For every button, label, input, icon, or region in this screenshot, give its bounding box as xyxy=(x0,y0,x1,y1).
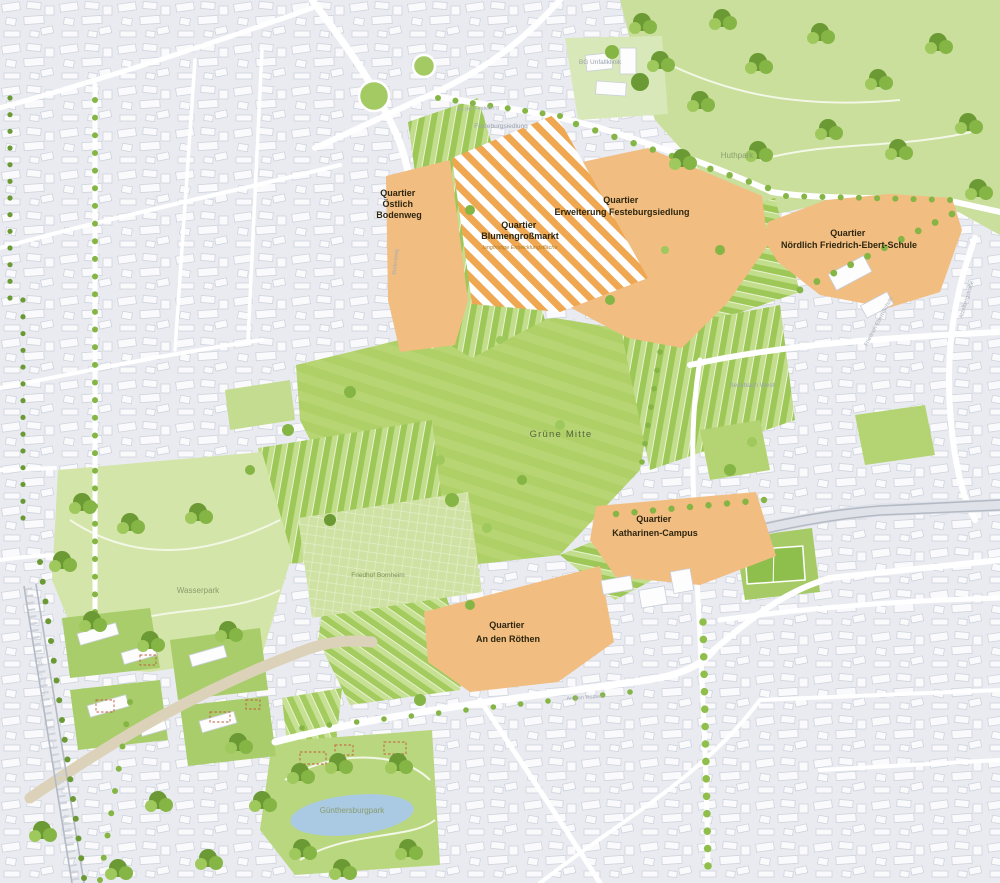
tree-icon xyxy=(409,846,423,860)
tree-icon xyxy=(687,504,693,510)
tree-icon xyxy=(838,194,844,200)
tree-icon xyxy=(20,331,25,336)
tree-icon xyxy=(73,816,79,822)
tree-icon xyxy=(92,485,98,491)
tree-icon xyxy=(131,520,145,534)
tree-icon xyxy=(51,658,57,664)
tree-icon xyxy=(324,514,336,526)
tree-icon xyxy=(343,866,357,880)
tree-icon xyxy=(668,506,674,512)
tree-icon xyxy=(195,858,207,870)
tree-icon xyxy=(101,855,107,861)
tree-icon xyxy=(263,798,277,812)
tree-icon xyxy=(344,386,356,398)
tree-icon xyxy=(724,500,730,506)
tree-icon xyxy=(92,238,98,244)
tree-icon xyxy=(92,450,98,456)
tree-icon xyxy=(557,113,563,119)
tree-icon xyxy=(92,327,98,333)
tree-icon xyxy=(605,45,619,59)
tree-icon xyxy=(709,18,721,30)
tree-icon xyxy=(92,274,98,280)
tree-icon xyxy=(639,459,645,465)
tree-icon xyxy=(630,140,636,146)
tree-icon xyxy=(43,828,57,842)
tree-icon xyxy=(700,636,708,644)
tree-icon xyxy=(915,227,922,234)
tree-icon xyxy=(724,464,736,476)
tree-icon xyxy=(414,694,426,706)
tree-icon xyxy=(545,698,551,704)
tree-icon xyxy=(7,212,12,217)
tree-icon xyxy=(108,810,114,816)
tree-icon xyxy=(815,128,827,140)
tree-icon xyxy=(289,848,301,860)
label-quartier-oestlich-bodenweg: Quartier Östlich Bodenweg xyxy=(376,188,422,220)
map: Quartier Östlich Bodenweg Quartier Blume… xyxy=(0,0,1000,883)
tree-icon xyxy=(643,20,657,34)
tree-icon xyxy=(20,482,25,487)
tree-icon xyxy=(20,297,25,302)
tree-icon xyxy=(92,185,98,191)
tree-icon xyxy=(137,640,149,652)
tree-icon xyxy=(452,98,458,104)
tree-icon xyxy=(687,100,699,112)
tree-icon xyxy=(20,432,25,437)
label-friedhof-bornheim: Friedhof Bornheim xyxy=(351,572,404,579)
tree-icon xyxy=(299,725,305,731)
tree-icon xyxy=(955,122,967,134)
tree-icon xyxy=(159,798,173,812)
tree-icon xyxy=(703,827,711,835)
tree-icon xyxy=(199,510,213,524)
tree-icon xyxy=(651,386,657,392)
tree-icon xyxy=(435,455,445,465)
tree-icon xyxy=(518,701,524,707)
tree-icon xyxy=(939,40,953,54)
label-huthpark: Huthpark xyxy=(721,151,754,160)
tree-icon xyxy=(611,134,617,140)
tree-icon xyxy=(702,775,710,783)
tree-icon xyxy=(151,638,165,652)
tree-icon xyxy=(339,760,353,774)
tree-icon xyxy=(436,710,442,716)
tree-icon xyxy=(701,723,709,731)
tree-icon xyxy=(874,195,880,201)
tree-icon xyxy=(650,507,656,513)
tree-icon xyxy=(701,705,709,713)
tree-icon xyxy=(856,195,862,201)
tree-icon xyxy=(37,559,43,565)
tree-icon xyxy=(329,868,341,880)
tree-icon xyxy=(847,261,854,268)
tree-icon xyxy=(20,465,25,470)
label-quartier-blumengrossmarkt-subtitle: langfristige Entwicklungsfläche xyxy=(483,245,558,251)
tree-icon xyxy=(381,716,387,722)
tree-icon xyxy=(40,579,46,585)
tree-icon xyxy=(92,574,98,580)
tree-icon xyxy=(701,688,709,696)
tree-icon xyxy=(661,246,669,254)
tree-icon xyxy=(759,148,773,162)
tree-icon xyxy=(699,618,707,626)
tree-icon xyxy=(65,757,71,763)
tree-icon xyxy=(120,744,126,750)
tree-icon xyxy=(63,558,77,572)
tree-icon xyxy=(465,205,475,215)
tree-icon xyxy=(92,432,98,438)
tree-icon xyxy=(629,22,641,34)
tree-icon xyxy=(7,279,12,284)
interchange-loop-icon xyxy=(413,55,435,77)
tree-icon xyxy=(79,620,91,632)
tree-icon xyxy=(463,707,469,713)
tree-icon xyxy=(7,95,12,100)
tree-icon xyxy=(683,156,697,170)
tree-icon xyxy=(127,699,133,705)
tree-icon xyxy=(7,112,12,117)
tree-icon xyxy=(807,32,819,44)
tree-icon xyxy=(76,836,82,842)
tree-icon xyxy=(119,866,133,880)
tree-icon xyxy=(92,168,98,174)
tree-icon xyxy=(20,499,25,504)
tree-icon xyxy=(648,404,654,410)
tree-icon xyxy=(965,188,977,200)
tree-icon xyxy=(116,766,122,772)
tree-icon xyxy=(245,465,255,475)
tree-icon xyxy=(56,697,62,703)
tree-icon xyxy=(700,653,708,661)
tree-icon xyxy=(631,73,649,91)
tree-icon xyxy=(435,95,441,101)
tree-icon xyxy=(185,512,197,524)
tree-icon xyxy=(702,758,710,766)
tree-icon xyxy=(7,179,12,184)
green-block-4 xyxy=(180,696,276,766)
tree-icon xyxy=(979,186,993,200)
tree-icon xyxy=(949,211,956,218)
interchange-loop-icon xyxy=(359,81,389,111)
tree-icon xyxy=(282,424,294,436)
tree-icon xyxy=(482,523,492,533)
tree-icon xyxy=(327,722,333,728)
tree-icon xyxy=(49,560,61,572)
tree-icon xyxy=(239,740,253,754)
tree-icon xyxy=(92,362,98,368)
label-seckbach-west: Seckbach West xyxy=(729,382,774,389)
tree-icon xyxy=(821,30,835,44)
tree-icon xyxy=(745,62,757,74)
tree-icon xyxy=(7,229,12,234)
tree-icon xyxy=(865,78,877,90)
tree-icon xyxy=(723,16,737,30)
tree-icon xyxy=(704,845,712,853)
tree-icon xyxy=(105,868,117,880)
tree-icon xyxy=(301,770,315,784)
tree-icon xyxy=(7,195,12,200)
tree-icon xyxy=(92,132,98,138)
tree-icon xyxy=(715,245,725,255)
tree-icon xyxy=(93,618,107,632)
tree-icon xyxy=(29,830,41,842)
map-canvas: Quartier Östlich Bodenweg Quartier Blume… xyxy=(0,0,1000,883)
tree-icon xyxy=(92,150,98,156)
tree-icon xyxy=(48,638,54,644)
label-gruene-mitte: Grüne Mitte xyxy=(530,429,593,440)
tree-icon xyxy=(613,511,619,517)
tree-icon xyxy=(20,448,25,453)
tree-icon xyxy=(112,788,118,794)
tree-icon xyxy=(517,475,527,485)
tree-icon xyxy=(654,368,660,374)
tree-icon xyxy=(399,760,413,774)
tree-icon xyxy=(69,502,81,514)
tree-icon xyxy=(645,423,651,429)
tree-icon xyxy=(925,42,937,54)
tree-icon xyxy=(7,262,12,267)
tree-icon xyxy=(78,855,84,861)
tree-icon xyxy=(505,105,511,111)
tree-icon xyxy=(573,121,579,127)
tree-icon xyxy=(7,129,12,134)
tree-icon xyxy=(20,314,25,319)
tree-icon xyxy=(705,502,711,508)
tree-icon xyxy=(20,515,25,520)
tree-icon xyxy=(81,875,87,881)
tree-icon xyxy=(62,737,68,743)
tree-icon xyxy=(783,193,789,199)
tree-icon xyxy=(117,522,129,534)
tree-icon xyxy=(491,704,497,710)
tree-icon xyxy=(92,256,98,262)
tree-icon xyxy=(657,349,663,355)
tree-icon xyxy=(647,60,659,72)
tree-icon xyxy=(765,185,771,191)
tree-icon xyxy=(409,713,415,719)
tree-icon xyxy=(229,628,243,642)
tree-icon xyxy=(746,178,752,184)
tree-icon xyxy=(650,146,656,152)
tree-icon xyxy=(797,287,804,294)
tree-icon xyxy=(899,146,913,160)
tree-icon xyxy=(726,172,732,178)
tree-icon xyxy=(97,877,103,883)
tree-icon xyxy=(92,115,98,121)
tree-icon xyxy=(20,398,25,403)
tree-icon xyxy=(879,76,893,90)
tree-icon xyxy=(92,415,98,421)
tree-icon xyxy=(7,295,12,300)
tree-icon xyxy=(354,719,360,725)
tree-icon xyxy=(287,772,299,784)
tree-icon xyxy=(929,197,935,203)
tree-icon xyxy=(819,194,825,200)
tree-icon xyxy=(7,145,12,150)
tree-icon xyxy=(445,493,459,507)
tree-icon xyxy=(215,630,227,642)
tree-icon xyxy=(83,500,97,514)
tree-icon xyxy=(145,800,157,812)
tree-icon xyxy=(67,776,73,782)
tree-icon xyxy=(605,295,615,305)
label-guenthersburgpark: Günthersburgpark xyxy=(320,806,385,815)
tree-icon xyxy=(20,381,25,386)
tree-icon xyxy=(123,721,129,727)
tree-icon xyxy=(92,309,98,315)
tree-icon xyxy=(759,60,773,74)
tree-icon xyxy=(92,291,98,297)
tree-icon xyxy=(59,717,65,723)
tree-icon xyxy=(830,270,837,277)
tree-icon xyxy=(707,166,713,172)
tree-icon xyxy=(70,796,76,802)
tree-icon xyxy=(700,670,708,678)
tree-icon xyxy=(54,678,60,684)
tree-icon xyxy=(703,792,711,800)
tree-icon xyxy=(669,158,681,170)
tree-icon xyxy=(92,556,98,562)
tree-icon xyxy=(465,600,475,610)
tree-icon xyxy=(702,740,710,748)
tree-icon xyxy=(932,219,939,226)
tree-icon xyxy=(92,203,98,209)
label-wasserpark: Wasserpark xyxy=(177,586,220,595)
tree-icon xyxy=(92,221,98,227)
tree-icon xyxy=(20,415,25,420)
tree-icon xyxy=(704,862,712,870)
tree-icon xyxy=(627,689,633,695)
tree-icon xyxy=(395,848,407,860)
tree-icon xyxy=(303,846,317,860)
tree-icon xyxy=(92,591,98,597)
tree-icon xyxy=(540,110,546,116)
tree-icon xyxy=(947,197,953,203)
green-patch-2 xyxy=(855,405,935,465)
tree-icon xyxy=(496,336,504,344)
tree-icon xyxy=(661,58,675,72)
tree-icon xyxy=(7,245,12,250)
tree-icon xyxy=(92,379,98,385)
tree-icon xyxy=(7,162,12,167)
tree-icon xyxy=(225,742,237,754)
tree-icon xyxy=(742,499,748,505)
tree-icon xyxy=(209,856,223,870)
tree-icon xyxy=(325,762,337,774)
tree-icon xyxy=(703,810,711,818)
tree-icon xyxy=(642,441,648,447)
tree-icon xyxy=(522,108,528,114)
tree-icon xyxy=(747,437,757,447)
tree-icon xyxy=(829,126,843,140)
tree-icon xyxy=(592,127,598,133)
tree-icon xyxy=(385,762,397,774)
tree-icon xyxy=(43,599,49,605)
tree-icon xyxy=(45,618,51,624)
tree-icon xyxy=(801,193,807,199)
tree-icon xyxy=(20,348,25,353)
tree-icon xyxy=(911,196,917,202)
tree-icon xyxy=(92,468,98,474)
tree-icon xyxy=(92,397,98,403)
tree-icon xyxy=(813,278,820,285)
tree-icon xyxy=(892,196,898,202)
tree-icon xyxy=(761,497,767,503)
tree-icon xyxy=(969,120,983,134)
label-bg-unfallklinik: BG Unfallklinik xyxy=(579,59,622,66)
tree-icon xyxy=(20,364,25,369)
tree-icon xyxy=(92,97,98,103)
tree-icon xyxy=(885,148,897,160)
tree-icon xyxy=(105,833,111,839)
tree-icon xyxy=(92,344,98,350)
tree-icon xyxy=(701,98,715,112)
label-festeburgsiedlung: Festeburgsiedlung xyxy=(474,123,528,130)
tree-icon xyxy=(864,253,871,260)
tree-icon xyxy=(92,538,98,544)
tree-icon xyxy=(92,521,98,527)
tree-icon xyxy=(249,800,261,812)
